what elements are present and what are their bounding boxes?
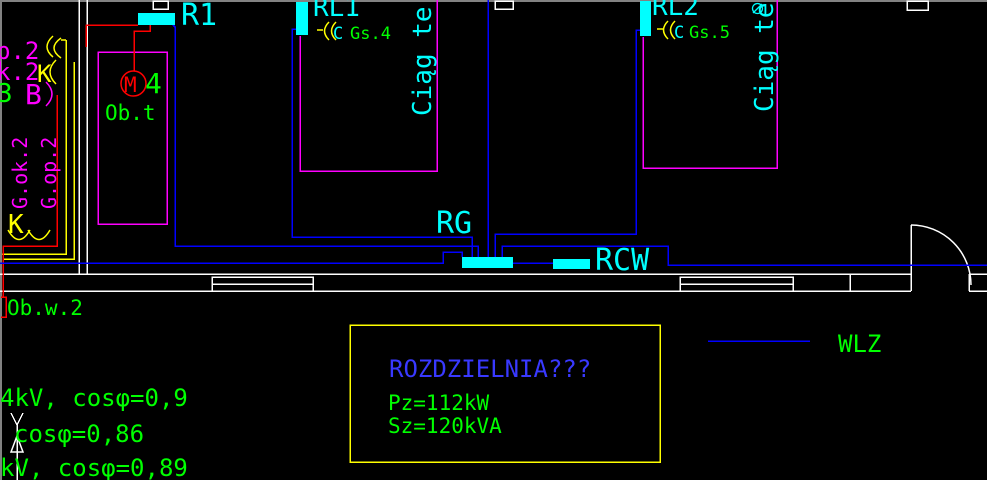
wire-rl2-to-rg[interactable] [495, 30, 641, 257]
label-k-bottom[interactable]: K [8, 210, 24, 240]
label-obw2[interactable]: Ob.w.2 [7, 296, 83, 320]
info-box-sz[interactable]: Sz=120kVA [388, 414, 502, 438]
board-rcw-symbol[interactable] [553, 259, 590, 269]
label-c1[interactable]: C [333, 24, 343, 44]
label-rl1[interactable]: RL1 [313, 0, 360, 23]
motor-symbol-letter[interactable]: M [124, 73, 137, 97]
label-c2[interactable]: C [674, 23, 684, 43]
label-rcw[interactable]: RCW [595, 243, 650, 278]
label-gop2-vertical[interactable]: G.op.2 [37, 137, 61, 209]
wire-main-wlz[interactable] [0, 252, 462, 263]
label-obt[interactable]: Ob.t [105, 101, 156, 125]
label-corridor2-vertical[interactable]: Ciąg te [750, 2, 780, 112]
board-rl1-symbol[interactable] [296, 2, 308, 35]
label-corridor1-vertical[interactable]: Ciąg te [408, 6, 438, 116]
board-rg-symbol[interactable] [462, 257, 513, 268]
red-feeder-top[interactable] [86, 25, 138, 47]
column-square-2[interactable] [495, 1, 513, 9]
door-swing-arc[interactable] [911, 225, 971, 285]
gs4-symbol-arc-1[interactable] [325, 22, 330, 40]
cad-drawing-canvas[interactable]: R1 RL1 RL2 RG RCW C Gs.4 C Gs.5 Ciąg te … [0, 0, 987, 480]
board-r1-symbol[interactable] [138, 13, 175, 25]
label-num3[interactable]: 3 [0, 79, 13, 109]
motor-feed-wire[interactable] [134, 25, 150, 71]
label-rg[interactable]: RG [436, 206, 472, 241]
label-r1[interactable]: R1 [181, 0, 217, 33]
label-k-top[interactable]: K [37, 60, 52, 88]
board-rl2-symbol[interactable] [640, 1, 651, 36]
label-rl2[interactable]: RL2 [652, 0, 699, 22]
motor-number[interactable]: 4 [145, 67, 162, 100]
note-cosphi-2[interactable]: cosφ=0,86 [14, 420, 144, 448]
label-gs5[interactable]: Gs.5 [689, 23, 730, 43]
switch-symbol-arc-2[interactable] [47, 36, 53, 57]
switch-symbol-arc-1[interactable] [54, 38, 61, 58]
column-square-1[interactable] [153, 1, 168, 9]
column-square-3[interactable] [907, 1, 928, 10]
label-gok2-vertical[interactable]: G.ok.2 [8, 137, 32, 209]
label-gs4[interactable]: Gs.4 [350, 24, 391, 44]
note-cosphi-3[interactable]: kV, cosφ=0,89 [0, 454, 188, 480]
note-cosphi-1[interactable]: 4kV, cosφ=0,9 [0, 384, 188, 412]
wlz-legend-label[interactable]: WLZ [838, 330, 881, 358]
info-box-pz[interactable]: Pz=112kW [388, 391, 490, 415]
gs5-symbol-arc-1[interactable] [664, 21, 669, 39]
switch-cup-symbol-2[interactable] [28, 230, 50, 240]
info-box-title[interactable]: ROZDZIELNIA??? [389, 355, 591, 383]
